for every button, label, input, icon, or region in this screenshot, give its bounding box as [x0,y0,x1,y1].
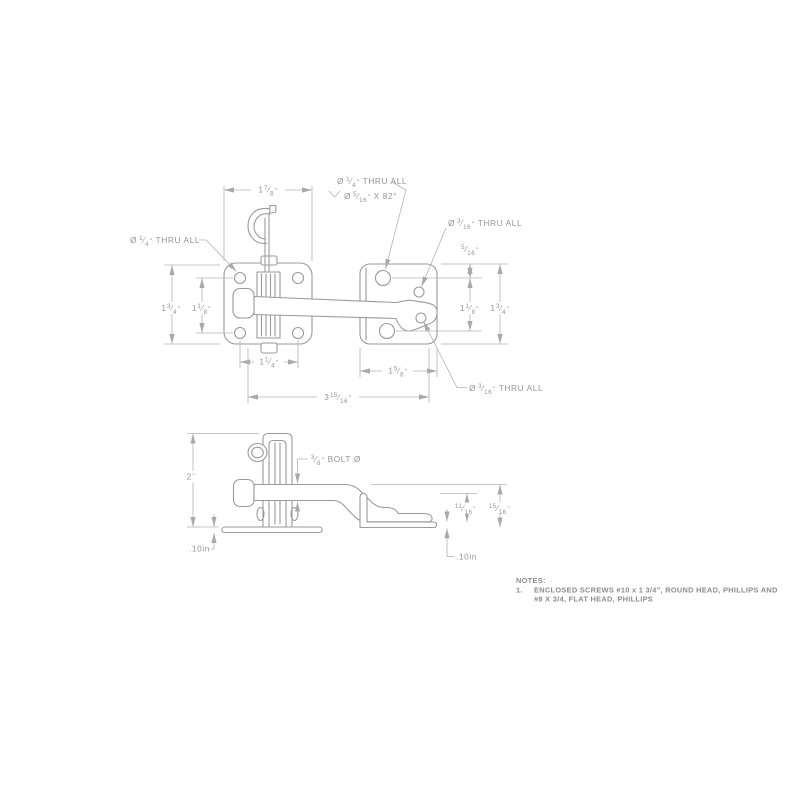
callout-left-thru-hole: Ø1⁄4"THRU ALL [130,235,237,272]
knob-side [234,480,255,507]
svg-text:Ø5⁄16"X 82°: Ø5⁄16"X 82° [344,191,397,204]
svg-text:Ø3⁄16"THRU ALL: Ø3⁄16"THRU ALL [469,383,543,396]
svg-text:Ø1⁄4"THRU ALL: Ø1⁄4"THRU ALL [130,235,200,248]
svg-text:Ø3⁄16"THRU ALL: Ø3⁄16"THRU ALL [448,218,522,231]
gate-latch-drawing: 17⁄8" 13⁄4" 11⁄8" 11⁄4" [0,0,800,800]
svg-text:3⁄8"BOLT Ø: 3⁄8"BOLT Ø [311,454,361,467]
bolt-hole [380,324,395,339]
note-line-1: ENCLOSED SCREWS #10 x 1 3/4", ROUND HEAD… [534,586,778,595]
svg-text:5⁄16": 5⁄16" [461,244,479,257]
callout-countersunk-hole: Ø1⁄4"THRU ALL Ø5⁄16"X 82° [329,176,407,269]
svg-text:.10in: .10in [456,552,477,562]
bracket-walls [263,434,292,528]
note-item-number: 1. [516,586,523,595]
screw-hole [414,287,424,297]
countersink-icon [329,191,340,197]
dim-right-plate-width: 15⁄8" [360,348,437,379]
callout-small-hole-bottom: Ø3⁄16"THRU ALL [424,322,544,397]
notes-title: NOTES: [516,576,546,585]
dim-thickness-right: .10in [447,509,477,562]
base-flange [222,527,322,533]
spring-tab-bottom [261,343,277,353]
notes-block: NOTES: 1. ENCLOSED SCREWS #10 x 1 3/4", … [516,576,778,604]
top-view: 17⁄8" 13⁄4" 11⁄8" 11⁄4" [130,176,543,405]
drawing-sheet: 17⁄8" 13⁄4" 11⁄8" 11⁄4" [0,0,800,800]
svg-text:.10in: .10in [189,544,210,554]
side-view: 2" .10in 3⁄8"BOLT Ø 11⁄16" 15⁄16" [184,434,513,562]
latch-bolt-side [254,485,432,522]
dim-plate-width: 17⁄8" [224,184,312,262]
bolt-hole [376,271,391,286]
latch-knob [233,289,254,319]
svg-text:Ø1⁄4"THRU ALL: Ø1⁄4"THRU ALL [337,176,407,189]
screw-hole [416,313,426,323]
note-line-2: #8 X 3/4, FLAT HEAD, PHILLIPS [534,595,653,604]
hook-pin-side [248,444,267,462]
